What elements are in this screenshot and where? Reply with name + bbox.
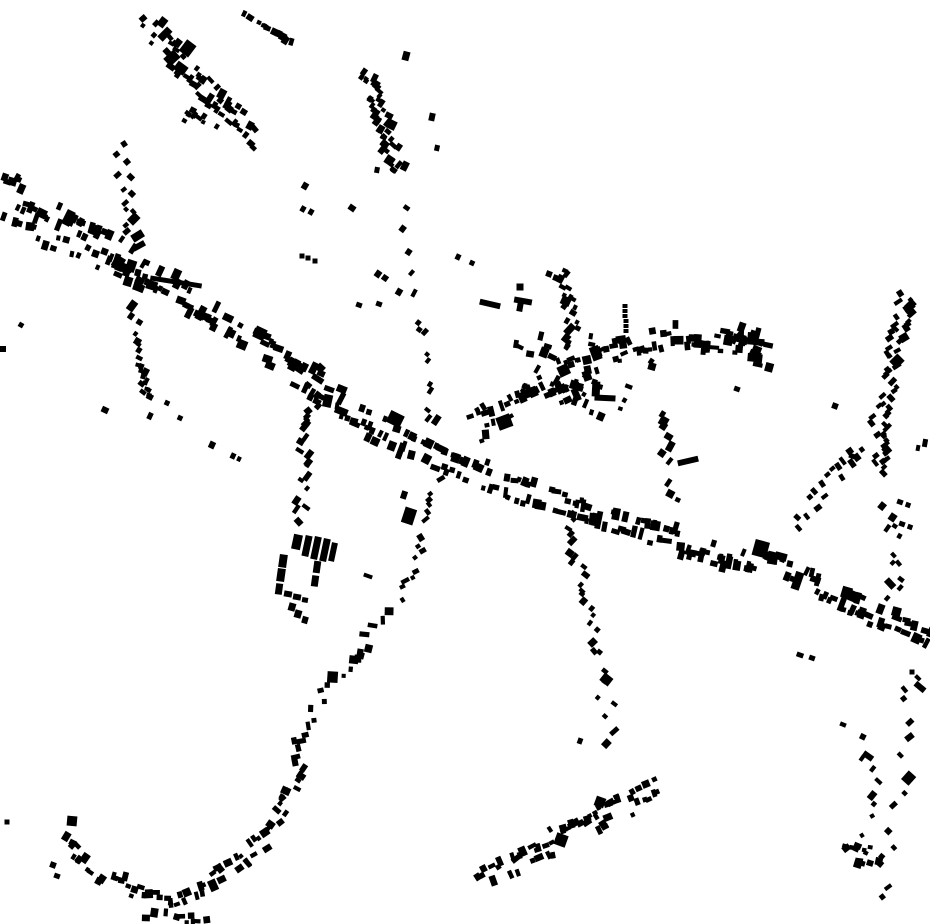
building-footprint (395, 287, 404, 296)
building-footprint (177, 415, 184, 422)
building-footprint (878, 392, 886, 400)
building-footprint (218, 111, 226, 118)
building-footprint (517, 284, 524, 291)
building-footprint (348, 666, 353, 672)
building-footprint (291, 495, 301, 506)
building-footprint (889, 559, 896, 566)
building-footprint (803, 512, 810, 520)
building-footprint (897, 576, 905, 583)
building-footprint (306, 256, 311, 261)
building-footprint (300, 254, 305, 259)
building-footprint (871, 458, 879, 467)
building-footprint (142, 914, 150, 921)
building-footprint (714, 333, 721, 338)
building-footprint (293, 785, 302, 792)
building-footprint (150, 908, 159, 918)
building-footprint (282, 809, 289, 817)
building-footprint (898, 521, 905, 528)
building-footprint (120, 140, 128, 148)
building-footprint (156, 894, 162, 900)
building-footprint (590, 612, 596, 618)
building-footprint (295, 447, 304, 455)
building-footprint (123, 158, 131, 166)
building-footprint (185, 920, 189, 924)
building-footprint (262, 843, 273, 853)
building-footprint (146, 412, 153, 420)
building-footprint (32, 212, 40, 224)
building-footprint (456, 471, 462, 479)
building-footprint (574, 499, 580, 508)
building-footprint (401, 507, 417, 526)
building-footprint (49, 245, 57, 252)
building-footprint (718, 349, 724, 354)
building-footprint (896, 499, 903, 506)
building-footprint (466, 413, 474, 420)
building-footprint (16, 183, 26, 195)
building-footprint (564, 284, 572, 291)
building-footprint (135, 355, 143, 362)
building-footprint (897, 751, 904, 758)
building-footprint (294, 609, 303, 619)
building-footprint (638, 527, 645, 540)
building-footprint (566, 355, 575, 362)
building-footprint (289, 381, 300, 390)
building-footprint (633, 797, 640, 806)
building-footprint (479, 864, 488, 873)
building-footprint (327, 671, 338, 683)
building-footprint (5, 820, 10, 825)
building-footprint (481, 485, 486, 491)
building-footprint (913, 681, 926, 693)
building-footprint (181, 887, 192, 898)
building-footprint (181, 897, 188, 906)
building-footprint (404, 248, 412, 256)
building-footprint (177, 914, 185, 919)
building-footprint (900, 629, 911, 638)
building-footprint (308, 705, 313, 712)
building-footprint (0, 346, 6, 352)
building-footprint (436, 475, 445, 483)
building-footprint (883, 524, 891, 533)
building-footprint (547, 826, 554, 833)
building-footprint (609, 726, 619, 736)
building-footprint (587, 637, 598, 648)
building-footprint (551, 488, 561, 494)
building-footprint (588, 333, 593, 340)
building-footprint (20, 206, 27, 215)
building-footprint (594, 394, 615, 401)
building-footprint (394, 143, 403, 152)
building-footprint (113, 171, 122, 180)
building-footprint (91, 249, 100, 258)
building-footprint (156, 16, 168, 29)
building-footprint (427, 386, 435, 395)
building-footprint (514, 399, 520, 405)
building-footprint (610, 700, 618, 707)
building-footprint (648, 347, 652, 351)
building-footprint (385, 607, 394, 615)
building-footprint (122, 227, 131, 236)
building-footprint (886, 393, 895, 402)
building-footprint (485, 468, 493, 477)
building-footprint (674, 497, 681, 503)
building-footprint (128, 893, 134, 898)
building-footprint (127, 212, 141, 226)
building-footprint (208, 441, 216, 450)
building-footprint (868, 413, 876, 421)
building-footprint (152, 890, 160, 895)
building-footprint (399, 584, 406, 590)
building-footprint (623, 304, 628, 308)
building-footprint (181, 118, 187, 124)
building-footprint (75, 252, 81, 259)
building-footprint (164, 400, 171, 407)
building-footprint (288, 602, 297, 612)
building-footprint (241, 10, 247, 17)
building-footprint (700, 344, 706, 355)
building-footprint (896, 533, 902, 540)
building-footprint (18, 322, 25, 329)
building-footprint (118, 235, 125, 243)
building-footprint (67, 816, 78, 827)
building-footprint (382, 432, 389, 442)
building-footprint (163, 908, 168, 916)
building-footprint (200, 890, 206, 897)
building-footprint (127, 312, 135, 321)
building-footprint (381, 274, 389, 282)
building-footprint (84, 244, 91, 252)
building-footprint (242, 131, 250, 139)
building-footprint (579, 497, 584, 503)
building-footprint (838, 473, 845, 481)
building-footprint (813, 503, 822, 512)
building-footprint (121, 199, 129, 207)
building-footprint (896, 289, 904, 298)
building-footprint (184, 306, 195, 319)
building-footprint (592, 381, 601, 396)
building-footprint (867, 418, 876, 427)
building-footprint (859, 733, 867, 741)
building-footprint (556, 509, 566, 516)
building-footprint (278, 554, 288, 568)
building-footprint (276, 568, 286, 582)
building-footprint (874, 777, 882, 785)
building-footprint (732, 560, 741, 571)
building-footprint (69, 251, 74, 258)
building-footprint (415, 543, 421, 549)
building-footprint (507, 870, 514, 879)
building-footprint (424, 414, 432, 423)
building-footprint (506, 394, 513, 402)
building-footprint (658, 344, 665, 352)
building-footprint (498, 400, 505, 412)
building-footprint (571, 396, 579, 406)
building-footprint (145, 889, 153, 898)
building-footprint (904, 732, 915, 742)
building-footprint (516, 302, 523, 312)
building-footprint (54, 218, 63, 231)
building-footprint (296, 738, 306, 745)
building-footprint (132, 331, 138, 337)
building-footprint (301, 181, 310, 190)
building-footprint (427, 381, 434, 388)
building-footprint (380, 107, 386, 113)
building-footprint (786, 560, 793, 567)
building-footprint (737, 321, 747, 332)
building-footprint (595, 695, 601, 701)
building-footprint (594, 626, 601, 633)
building-footprint (122, 276, 133, 288)
building-footprint (484, 423, 490, 428)
building-footprint (0, 212, 8, 222)
building-footprint (311, 718, 317, 723)
building-footprint (322, 699, 327, 704)
building-footprint (273, 344, 285, 354)
building-footprint (564, 498, 571, 505)
building-footprint (123, 206, 129, 212)
building-footprint (194, 919, 201, 924)
building-footprint (514, 497, 520, 504)
building-footprint (407, 450, 416, 460)
building-footprint (661, 538, 672, 544)
building-footprint (236, 456, 242, 462)
building-footprint (203, 916, 210, 924)
building-footprint (425, 357, 432, 364)
building-footprint (538, 381, 546, 391)
building-footprint (256, 20, 262, 26)
building-footprint (408, 269, 415, 276)
building-footprint (710, 560, 719, 567)
building-footprint (824, 471, 831, 478)
building-footprint (381, 616, 385, 625)
building-footprint (740, 548, 747, 557)
building-footprint (647, 362, 656, 371)
building-footprint (866, 621, 873, 629)
building-footprint (624, 324, 629, 328)
building-footprint (294, 517, 304, 527)
building-footprint (250, 851, 258, 858)
building-footprint (624, 319, 629, 323)
building-footprint (859, 832, 865, 838)
building-footprint (634, 784, 642, 792)
building-footprint (525, 494, 532, 505)
building-footprint (216, 875, 227, 885)
building-footprint (885, 334, 894, 343)
building-footprint (641, 779, 651, 789)
building-footprint (487, 406, 495, 417)
building-footprint (596, 648, 603, 655)
building-footprint (871, 801, 878, 808)
building-footprint (893, 313, 900, 321)
building-footprint (894, 625, 902, 632)
building-footprint (188, 912, 195, 918)
building-footprint (313, 561, 322, 574)
building-footprint (120, 186, 127, 193)
building-footprint (879, 893, 886, 900)
building-footprint (891, 523, 898, 529)
building-footprint (431, 414, 442, 426)
building-footprint (359, 631, 369, 637)
building-footprint (342, 674, 346, 678)
building-footprint (829, 465, 836, 472)
building-footprint (647, 540, 654, 546)
building-footprint (15, 204, 21, 212)
building-footprint (905, 502, 911, 508)
building-footprint (862, 848, 867, 853)
building-footprint (212, 301, 222, 314)
building-footprint (347, 204, 356, 213)
building-footprint (410, 575, 416, 581)
building-footprint (542, 842, 550, 849)
building-footprint (839, 606, 846, 612)
building-footprint (677, 549, 686, 560)
building-footprint (125, 883, 132, 889)
building-footprint (627, 794, 635, 802)
building-footprint (245, 13, 254, 22)
building-footprint (651, 776, 658, 782)
building-footprint (562, 491, 569, 497)
building-footprint (272, 805, 282, 815)
building-footprint (364, 644, 373, 654)
building-footprint (617, 359, 622, 363)
building-footprint (623, 314, 628, 318)
building-footprint (580, 563, 588, 570)
building-footprint (374, 269, 383, 278)
building-footprint (834, 462, 843, 471)
building-footprint (574, 319, 580, 325)
building-footprint (374, 167, 380, 174)
building-footprint (635, 517, 642, 526)
building-footprint (657, 448, 667, 458)
building-footprint (534, 501, 546, 511)
building-footprint (144, 386, 150, 391)
building-footprint (484, 458, 491, 466)
building-footprint (239, 108, 248, 116)
building-footprint (643, 347, 649, 353)
building-footprint (295, 744, 302, 752)
building-footprint (900, 695, 908, 703)
building-footprint (665, 457, 673, 466)
building-footprint (839, 721, 846, 727)
building-footprint (563, 317, 570, 325)
building-footprint (479, 299, 501, 310)
building-footprint (366, 409, 373, 416)
building-footprint (276, 818, 285, 827)
building-footprint (418, 547, 426, 555)
building-footprint (621, 397, 627, 403)
building-footprint (284, 590, 293, 597)
building-footprint (420, 453, 432, 465)
building-footprint (515, 869, 521, 877)
building-footprint (890, 844, 897, 851)
building-footprint (710, 539, 717, 547)
building-footprint (428, 112, 436, 121)
building-footprint (618, 406, 623, 411)
building-footprint (400, 577, 410, 585)
building-footprint (386, 440, 397, 452)
building-footprint (488, 863, 496, 870)
building-footprint (889, 801, 898, 810)
building-footprint (135, 318, 143, 326)
building-footprint (53, 873, 60, 880)
building-footprint (884, 577, 896, 590)
building-footprint (100, 247, 109, 256)
building-footprint (673, 320, 679, 329)
building-footprint (537, 331, 544, 341)
building-footprint (401, 51, 410, 62)
building-footprint (602, 713, 609, 720)
building-footprint (229, 452, 236, 460)
building-footprint (375, 301, 382, 308)
building-footprint (893, 347, 901, 354)
building-footprint (806, 493, 813, 500)
building-footprint (234, 863, 245, 873)
building-footprint (299, 205, 306, 213)
building-footprint (581, 391, 587, 397)
building-footprint (577, 581, 584, 588)
map-canvas (0, 0, 930, 924)
building-footprint (56, 202, 63, 211)
building-footprint (469, 260, 476, 267)
building-footprint (808, 655, 815, 662)
building-footprint (624, 329, 629, 333)
building-footprint (901, 770, 916, 785)
building-footprint (427, 491, 433, 497)
building-footprint (582, 398, 589, 408)
building-footprint (922, 439, 928, 448)
building-footprint (717, 554, 726, 561)
building-footprint (150, 32, 157, 39)
building-footprint (677, 456, 699, 467)
building-footprint (818, 479, 826, 488)
building-footprint (126, 173, 135, 182)
building-footprint (148, 40, 154, 46)
building-footprint (821, 493, 829, 500)
building-footprint (336, 392, 346, 406)
building-footprint (62, 236, 70, 244)
building-footprint (533, 364, 541, 374)
building-footprint (301, 535, 312, 557)
building-footprint (35, 235, 41, 242)
building-footprint (793, 513, 801, 521)
building-footprint (520, 500, 526, 507)
building-footprint (620, 350, 628, 357)
building-footprint (664, 478, 672, 487)
building-footprint (869, 813, 875, 819)
building-footprint (434, 145, 440, 152)
building-footprint (56, 235, 61, 241)
building-footprint (311, 575, 319, 587)
building-footprint (399, 597, 405, 603)
building-footprint (529, 477, 538, 488)
building-footprint (313, 259, 318, 264)
building-footprint (323, 385, 334, 394)
building-footprint (121, 871, 129, 881)
building-footprint (873, 431, 882, 439)
building-footprint (862, 750, 874, 761)
building-footprint (872, 452, 880, 460)
building-footprint (139, 14, 148, 23)
building-footprint (488, 875, 498, 887)
building-footprint (426, 501, 433, 508)
building-footprint (155, 265, 165, 277)
building-footprint (301, 503, 310, 511)
building-footprint (112, 150, 120, 158)
building-footprint (559, 400, 564, 406)
building-footprint (895, 559, 902, 567)
building-footprint (301, 616, 309, 624)
building-footprint (628, 788, 636, 796)
